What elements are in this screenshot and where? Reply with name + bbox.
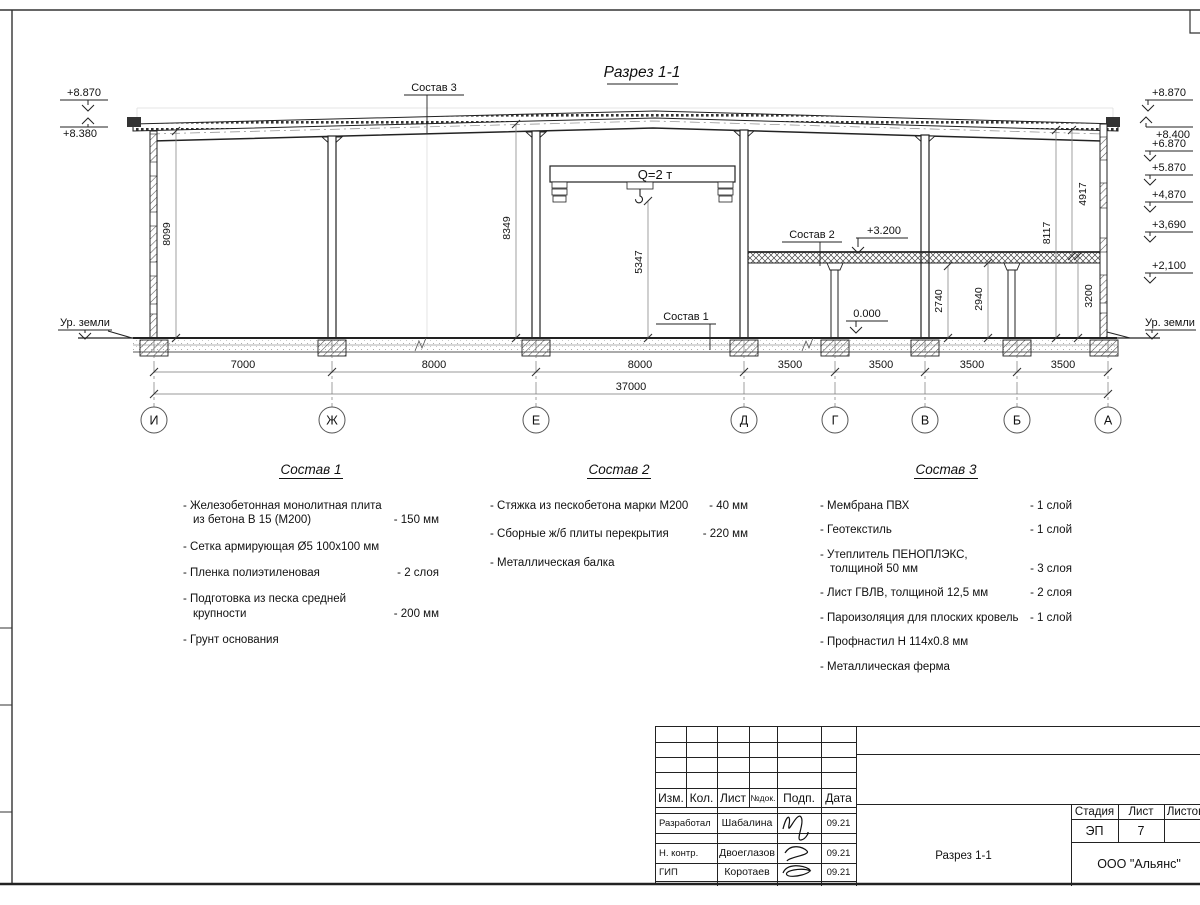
list-item: - Утеплитель ПЕНОПЛЭКС, толщиной 50 мм- … [820,548,1072,577]
leader-sostav1: Состав 1 [663,311,709,323]
tb-name-developed: Шабалина [717,813,777,833]
elev-right-4870: +4,870 [1152,189,1186,201]
elev-right-8870: +8.870 [1152,87,1186,99]
elev-left-8380: +8.380 [63,128,97,140]
drawing-sheet: Разрез 1-1 [0,0,1200,900]
dim-span-5: 3500 [869,359,893,371]
tb-sheets-label: Листов [1164,804,1200,819]
dim-span-6: 3500 [960,359,984,371]
list-item: - Сборные ж/б плиты перекрытия- 220 мм [490,527,748,541]
dim-4917: 4917 [1077,182,1089,206]
tb-col-podp: Подп. [777,789,821,807]
tb-doc-name: Разрез 1-1 [856,804,1071,886]
axis-a: А [1104,414,1113,428]
axis-g: Г [832,414,839,428]
elev-left-8870: +8.870 [67,87,101,99]
tb-col-data: Дата [821,789,856,807]
dim-8099: 8099 [161,222,173,246]
list-item: - Стяжка из пескобетона марки М200- 40 м… [490,499,748,513]
column-axis-g-lower [831,270,838,338]
list-item: - Металлическая балка [490,556,748,570]
list-item: - Мембрана ПВХ- 1 слой [820,499,1072,513]
elev-zero: 0.000 [853,308,881,320]
column-axis-zh [328,136,336,338]
axis-d: Д [740,414,749,428]
construction-lines [137,108,1113,338]
list-item: - Пароизоляция для плоских кровель- 1 сл… [820,611,1072,625]
ground-floor [78,331,1160,352]
tb-role-ncontrol: Н. контр. [656,843,720,863]
tb-col-izm: Изм. [656,789,686,807]
column-axis-b-lower [1008,270,1015,338]
tb-col-ndok: №док. [749,789,777,807]
sostav1-list: Состав 1 - Железобетонная монолитная пли… [183,462,439,660]
sostav2-list: Состав 2 - Стяжка из пескобетона марки М… [490,462,748,584]
dim-5347: 5347 [633,250,645,274]
tb-sheet-value: 7 [1118,819,1164,842]
list-item: - Грунт основания [183,633,439,647]
dim-span-1: 7000 [231,359,255,371]
sostav3-title: Состав 3 [820,462,1072,479]
roof [127,111,1120,146]
tb-col-list: Лист [717,789,749,807]
elev-right-5870: +5.870 [1152,162,1186,174]
axis-bubbles [141,407,1121,433]
axis-i: И [150,414,159,428]
axis-zh: Ж [326,414,338,428]
tb-name-ncontrol: Двоеглазов [717,843,777,863]
tb-role-gip: ГИП [656,863,720,881]
crane-hook-icon [635,189,642,203]
list-item: - Пленка полиэтиленовая- 2 слоя [183,566,439,580]
list-item: - Геотекстиль- 1 слой [820,523,1072,537]
dim-2940: 2940 [973,287,985,311]
corner-stamp-box [1190,10,1200,33]
list-item: - Железобетонная монолитная плита из бет… [183,499,439,528]
dim-total: 37000 [616,381,647,393]
tb-sheet-label: Лист [1118,804,1164,819]
elev-right-2100: +2,100 [1152,260,1186,272]
title-block: Изм. Кол. Лист №док. Подп. Дата Разработ… [655,726,1200,885]
dim-2740: 2740 [933,289,945,313]
leader-sostav2: Состав 2 [789,229,835,241]
dim-span-4: 3500 [778,359,802,371]
tb-stage-value: ЭП [1071,819,1118,842]
signature-developed [777,807,821,843]
dim-span-2: 8000 [422,359,446,371]
crane-capacity-label: Q=2 т [638,167,673,182]
elev-floor2: +3.200 [867,225,901,237]
sostav3-list: Состав 3 - Мембрана ПВХ- 1 слой - Геотек… [820,462,1072,684]
dim-8117: 8117 [1041,222,1053,245]
dim-8349: 8349 [501,216,513,240]
axis-b: Б [1013,414,1021,428]
axis-e: Е [532,414,540,428]
elev-right-6870: +6.870 [1152,138,1186,150]
list-item: - Сетка армирующая Ø5 100х100 мм [183,540,439,554]
list-item: - Подготовка из песка средней крупности-… [183,592,439,621]
dim-span-7: 3500 [1051,359,1075,371]
dim-span-3: 8000 [628,359,652,371]
tb-date-developed: 09.21 [821,813,856,833]
tb-company: ООО "Альянс" [1071,842,1200,886]
list-item: - Лист ГВЛВ, толщиной 12,5 мм- 2 слоя [820,586,1072,600]
roof-end-cap-right [1106,117,1120,127]
ground-label-right: Ур. земли [1145,317,1195,329]
column-axis-v [921,135,929,338]
crane-trolley [627,182,653,189]
elev-right-3690: +3,690 [1152,219,1186,231]
axis-v: В [921,414,929,428]
tb-date-gip: 09.21 [821,863,856,881]
column-axis-e [532,131,540,338]
roof-end-cap-left [127,117,141,127]
tb-stage-label: Стадия [1071,804,1118,819]
ground-label-left: Ур. земли [60,317,110,329]
columns [150,124,1107,338]
list-item: - Металлическая ферма [820,660,1072,674]
column-axis-d [740,130,748,338]
tb-date-ncontrol: 09.21 [821,843,856,863]
vertical-dim-ticks [172,120,1082,342]
drawing-title: Разрез 1-1 [604,64,681,81]
list-item: - Профнастил Н 114х0.8 мм [820,635,1072,649]
leader-sostav3: Состав 3 [411,82,457,94]
tb-name-gip: Коротаев [717,863,777,881]
dim-3200: 3200 [1083,284,1095,308]
tb-col-kol: Кол. [686,789,717,807]
sostav2-title: Состав 2 [490,462,748,479]
tb-role-developed: Разработал [656,813,720,833]
signature-ncontrol-gip [777,839,821,885]
sostav1-title: Состав 1 [183,462,439,479]
